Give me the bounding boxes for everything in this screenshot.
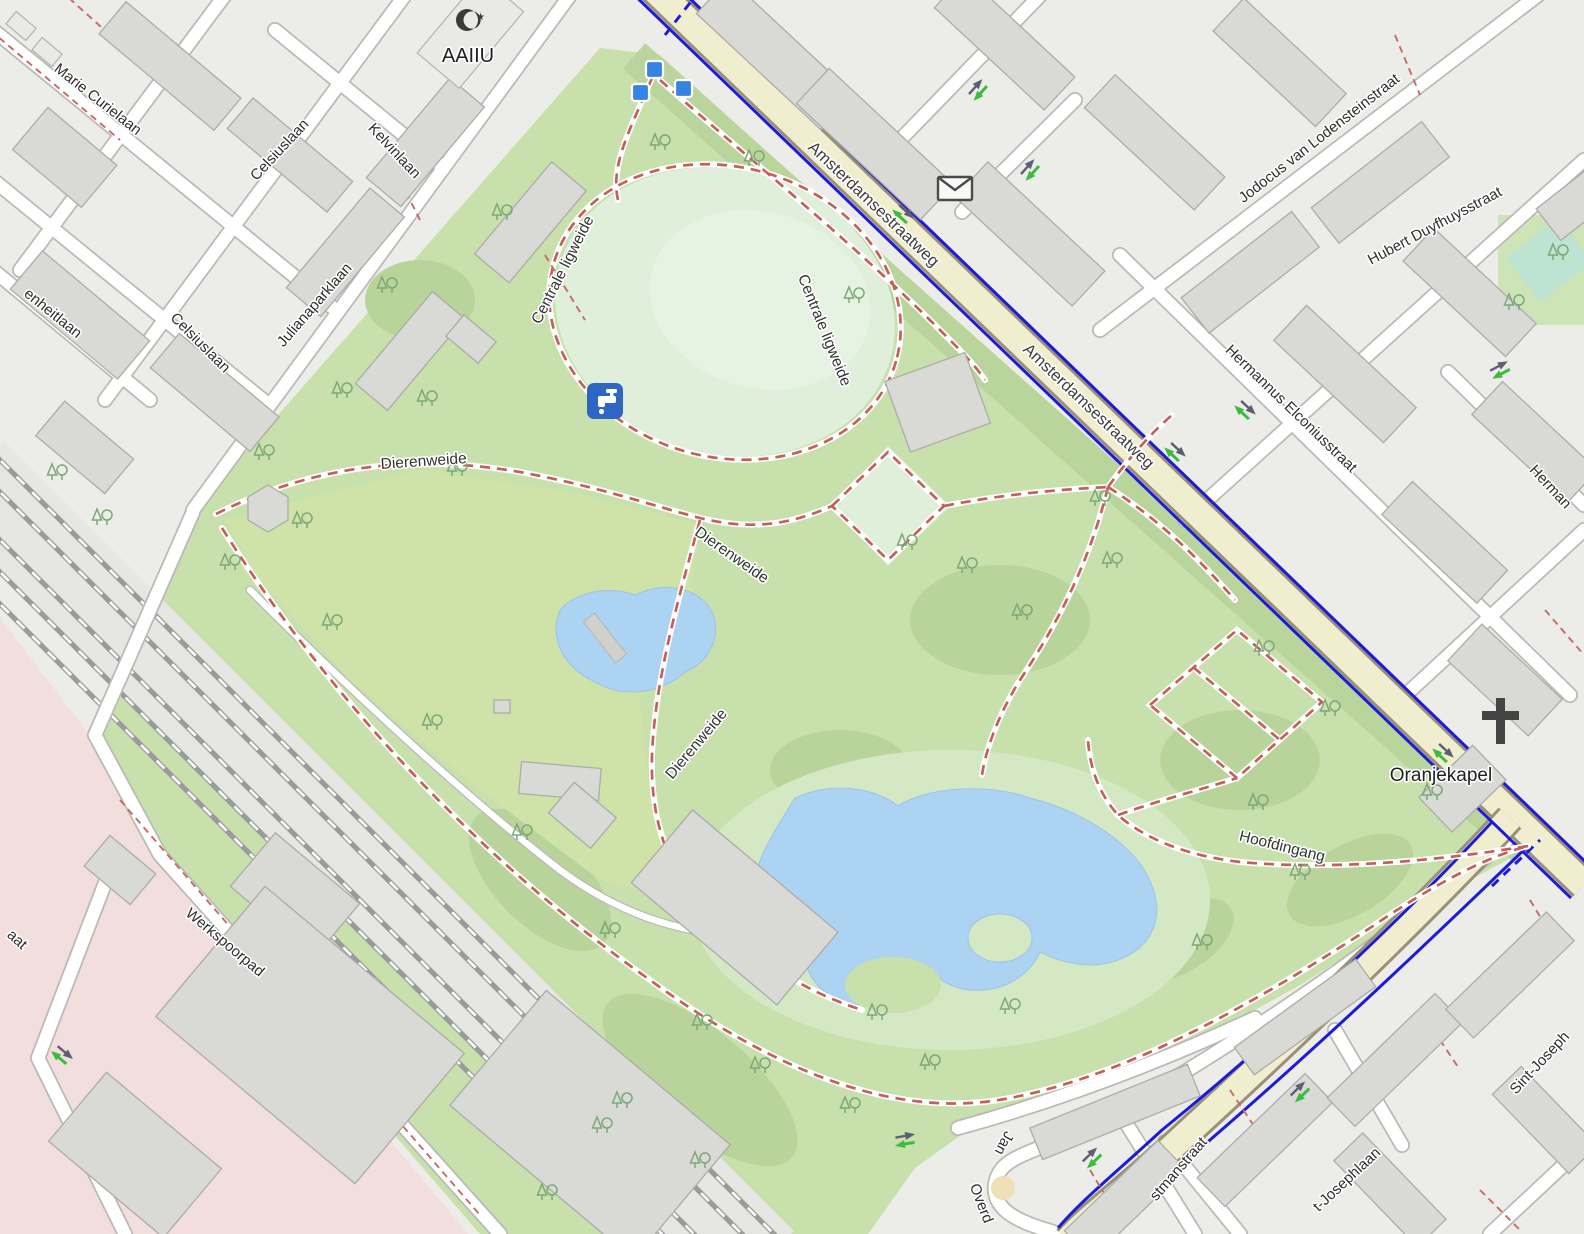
poi-label-aaiiu: AAIIU xyxy=(442,45,494,67)
junction-patch xyxy=(991,1176,1015,1200)
node-marker-icon[interactable] xyxy=(646,61,663,78)
drinking-water-icon[interactable] xyxy=(587,383,623,419)
poi-label-oranjekapel: Oranjekapel xyxy=(1390,765,1492,786)
node-marker-icon[interactable] xyxy=(632,84,649,101)
map-viewport[interactable]: ★ Marie Curielaan Celsiuslaan Kelvinlaan… xyxy=(0,0,1584,1234)
map-canvas[interactable]: ★ Marie Curielaan Celsiuslaan Kelvinlaan… xyxy=(0,0,1584,1234)
svg-text:★: ★ xyxy=(476,12,485,23)
lake-peninsula xyxy=(845,957,941,1013)
node-marker-icon[interactable] xyxy=(675,80,692,97)
postbox-icon[interactable] xyxy=(938,177,972,200)
